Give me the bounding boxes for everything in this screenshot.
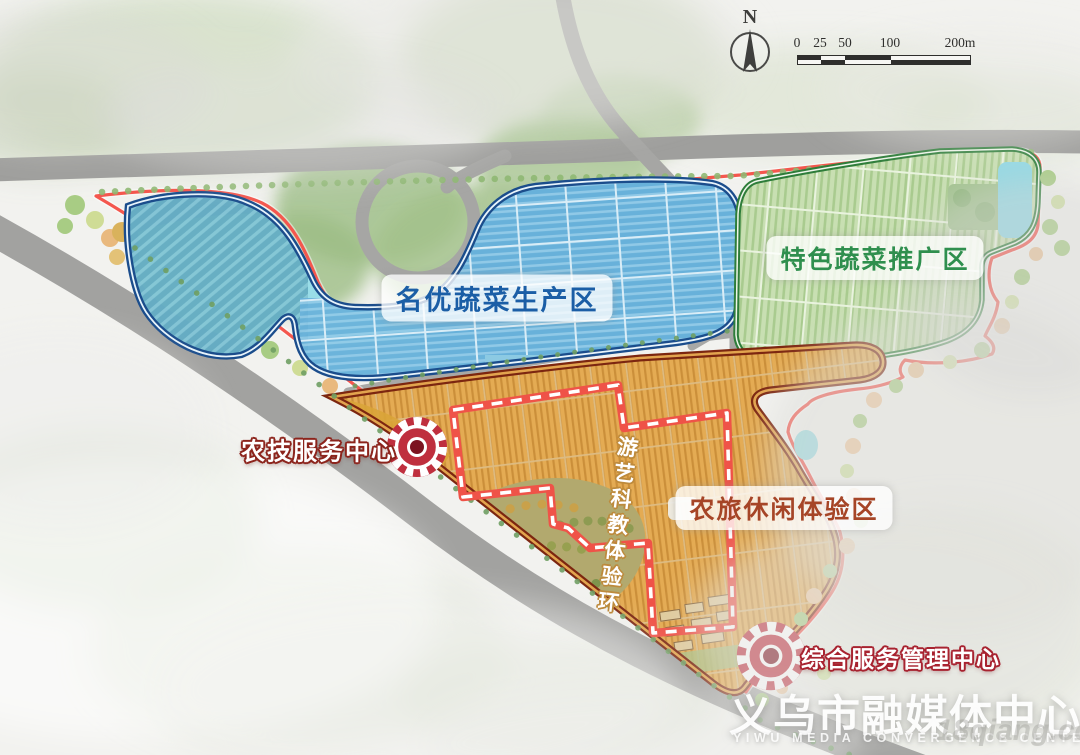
scale-segment — [798, 56, 821, 64]
zone-label-vegetable-production: 名优蔬菜生产区 — [382, 275, 613, 322]
scale-tick-200m: 200m — [945, 35, 976, 51]
scale-tick-50: 50 — [838, 35, 852, 51]
label-management-center: 综合服务管理中心 — [801, 640, 1001, 674]
scale-bar — [797, 55, 971, 65]
scale-tick-100: 100 — [880, 35, 900, 51]
label-agri-tech-service-center: 农技服务中心 — [241, 432, 397, 467]
scale-segment — [891, 56, 970, 64]
zone-label-specialty-vegetable-promotion: 特色蔬菜推广区 — [766, 236, 983, 280]
scale-tick-25: 25 — [813, 35, 827, 51]
scale-segment — [845, 56, 891, 64]
agri-tech-service-marker — [392, 422, 442, 472]
scale-tick-0: 0 — [794, 35, 801, 51]
site-plan-map: 名优蔬菜生产区 特色蔬菜推广区 农旅休闲体验区 农技服务中心 综合服务管理中心 … — [0, 0, 1080, 755]
zone-label-agritourism-leisure: 农旅休闲体验区 — [675, 486, 892, 530]
watermark-corner: 18qiang.com — [936, 714, 1080, 748]
scale-segment — [821, 56, 845, 64]
north-label: N — [743, 6, 757, 29]
